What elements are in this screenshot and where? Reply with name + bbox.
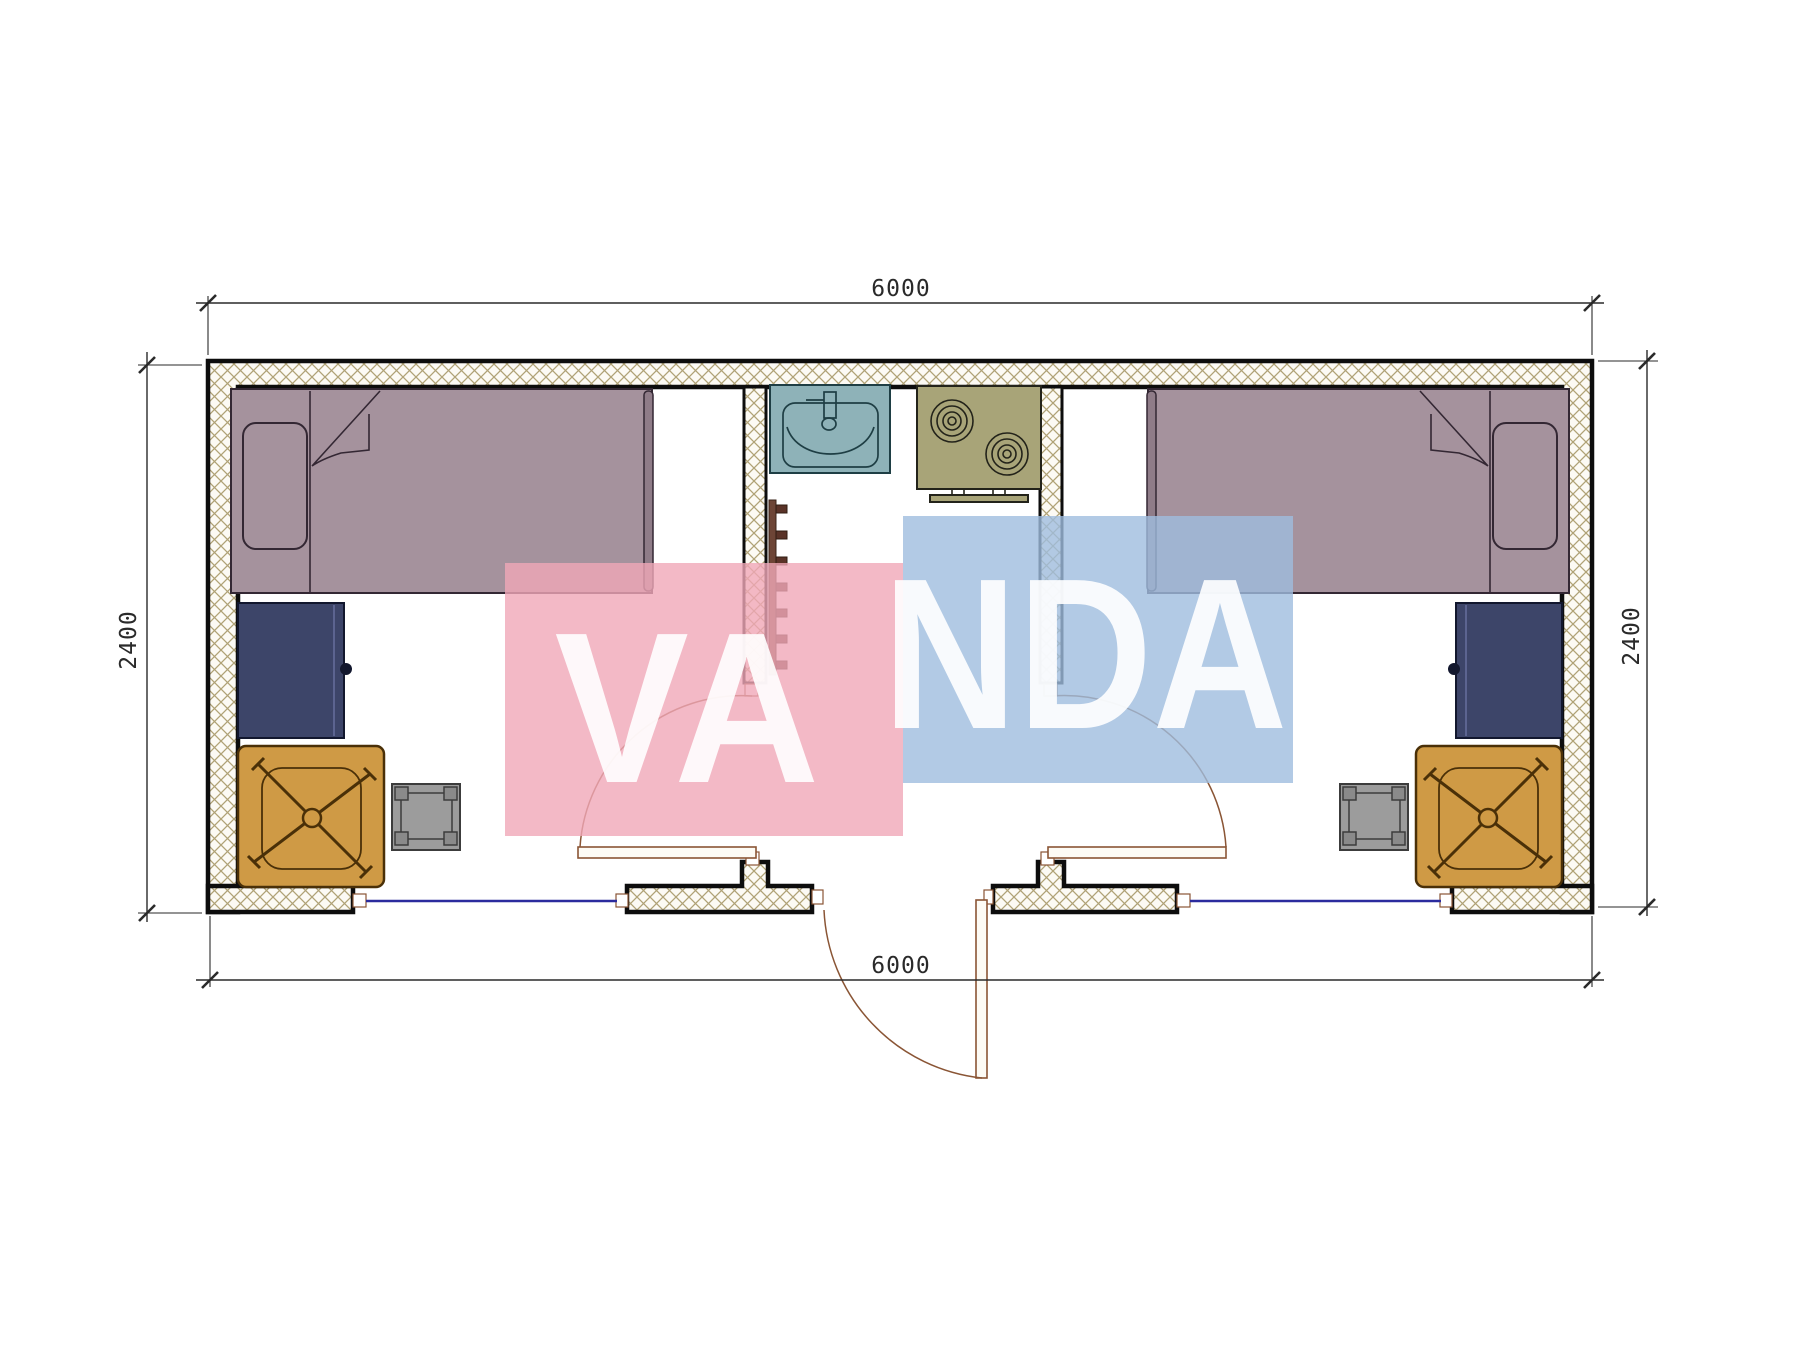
ladder-rung <box>776 505 787 513</box>
window-jamb <box>353 894 366 907</box>
dim-right-label: 2400 <box>1619 606 1645 665</box>
desk <box>238 603 344 738</box>
desk-knob <box>340 663 352 675</box>
window-jamb <box>616 894 628 907</box>
watermark-text-va: VA <box>555 587 820 828</box>
stool-leg <box>1343 787 1356 800</box>
bottom-wall-left-center-T <box>627 862 812 912</box>
dimension-top: 6000 <box>196 276 1604 355</box>
stove-top <box>917 386 1041 489</box>
stool-leg <box>444 832 457 845</box>
left-room-door-leaf <box>578 847 756 858</box>
chair-hub <box>1479 809 1497 827</box>
pillow <box>243 423 307 549</box>
chair-hub <box>303 809 321 827</box>
sink <box>770 385 890 473</box>
desk-knob <box>1448 663 1460 675</box>
stool-leg <box>395 787 408 800</box>
dimension-right: 2400 <box>1598 350 1658 916</box>
office-chair <box>1416 746 1562 887</box>
window-jamb <box>1440 894 1452 907</box>
watermark: VA NDA <box>505 516 1293 836</box>
stool <box>392 784 460 850</box>
floor-plan-drawing: 6000 6000 2400 2400 VA NDA <box>0 0 1800 1350</box>
stool <box>1340 784 1408 850</box>
stove-handle-bar <box>930 495 1028 502</box>
bottom-wall-left <box>208 886 353 912</box>
stool-leg <box>444 787 457 800</box>
window-jamb <box>1177 894 1190 907</box>
windows <box>353 894 1452 907</box>
dimension-bottom: 6000 <box>196 916 1604 988</box>
ladder-rung <box>776 531 787 539</box>
stool-leg <box>395 832 408 845</box>
entrance-door-leaf <box>976 900 987 1078</box>
bottom-wall-right <box>1452 886 1592 912</box>
door-jamb <box>812 890 823 904</box>
dim-left-label: 2400 <box>116 610 142 669</box>
dim-bottom-label: 6000 <box>871 953 930 979</box>
bed-footboard <box>644 391 653 591</box>
stool-leg <box>1343 832 1356 845</box>
stove <box>917 386 1041 502</box>
stool-leg <box>1392 832 1405 845</box>
right-room-door-leaf <box>1048 847 1226 858</box>
office-chair <box>238 746 384 887</box>
stool-leg <box>1392 787 1405 800</box>
pillow <box>1493 423 1557 549</box>
bottom-wall-right-center-T <box>993 862 1177 912</box>
desk <box>1456 603 1562 738</box>
dim-top-label: 6000 <box>871 276 930 302</box>
entrance-door-swing <box>824 910 982 1078</box>
floor-plan-page: 6000 6000 2400 2400 VA NDA <box>0 0 1800 1350</box>
watermark-text-nda: NDA <box>883 533 1288 774</box>
dimension-left: 2400 <box>116 352 202 922</box>
